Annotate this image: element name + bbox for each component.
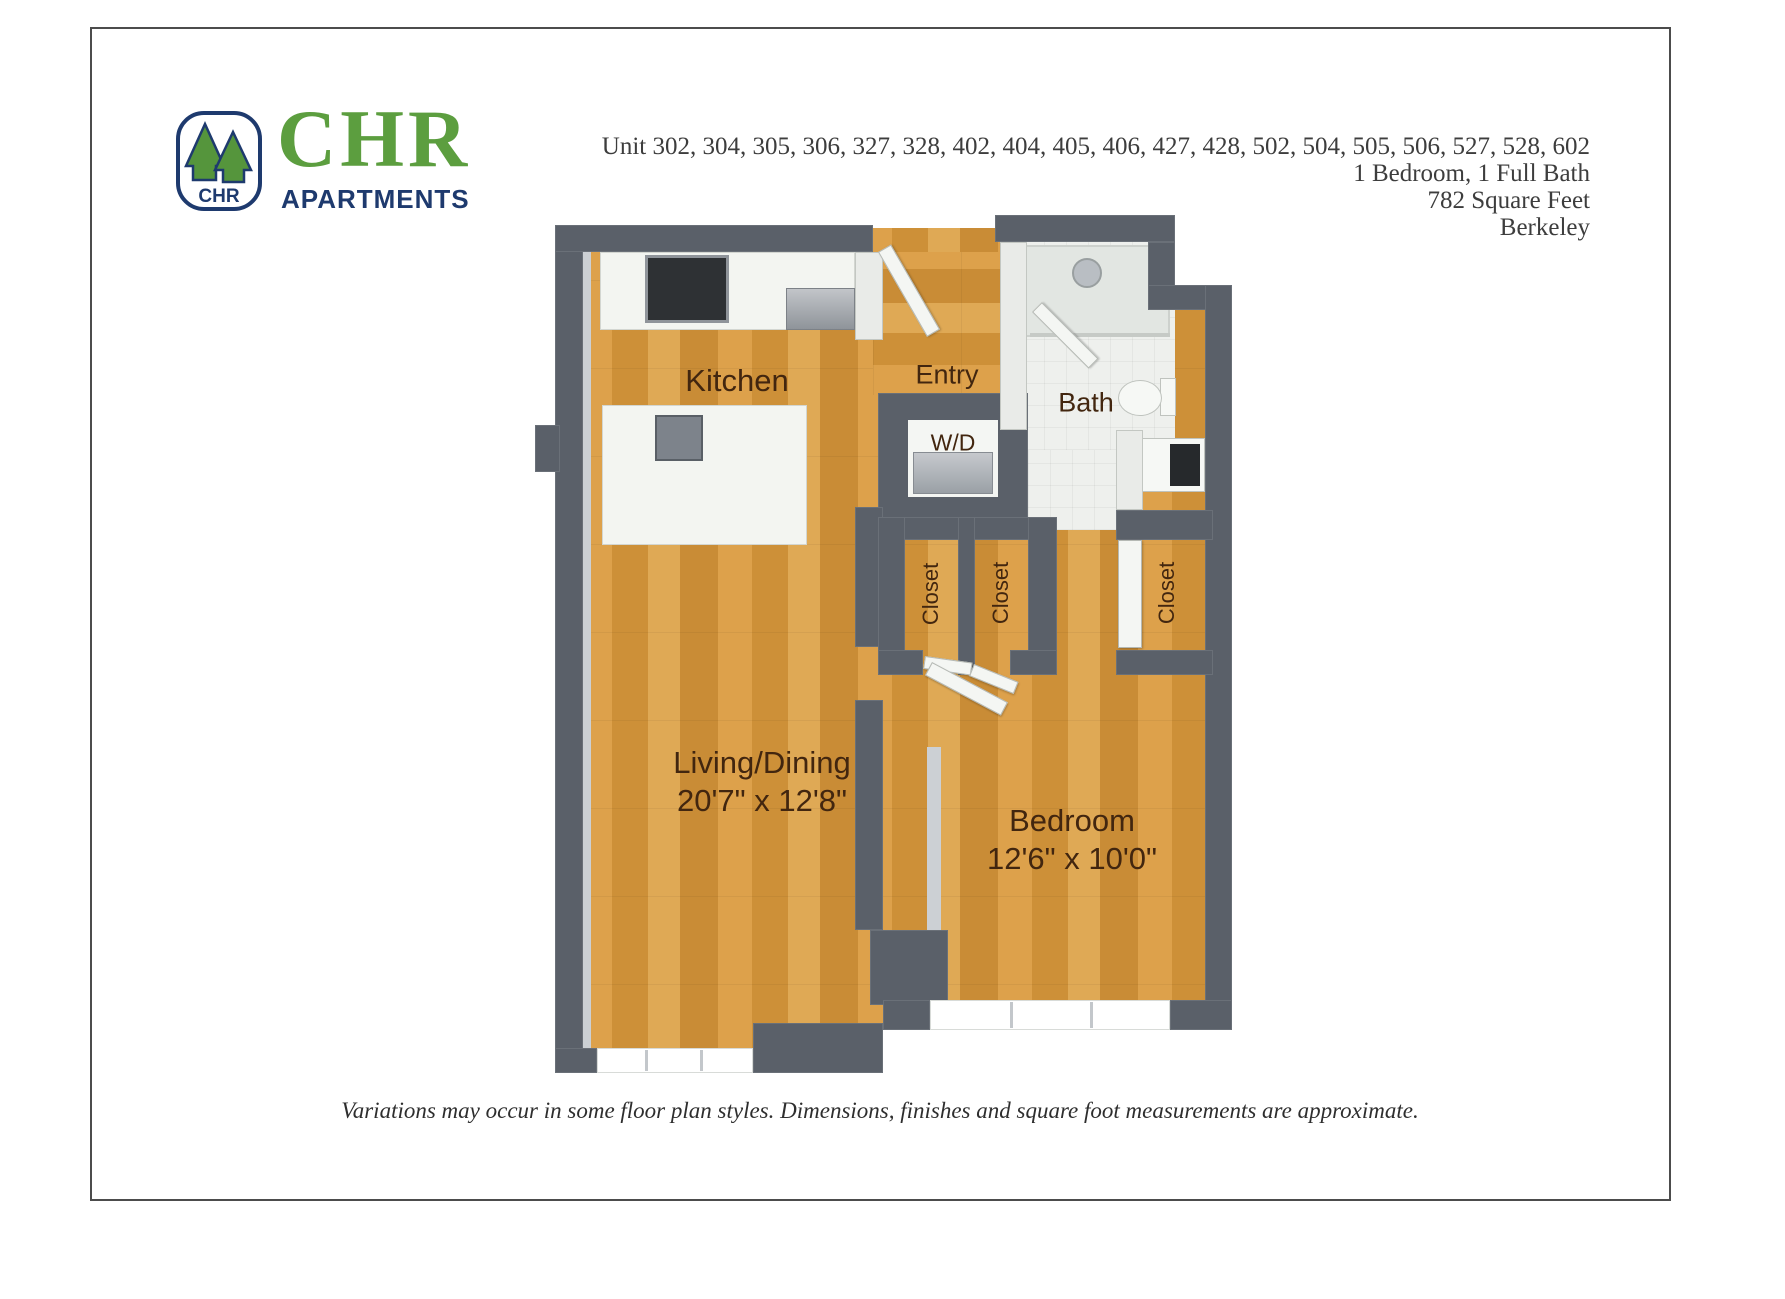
logo-icon-text: CHR: [198, 186, 239, 207]
wall-bedroom-bottom-right: [1170, 1000, 1232, 1030]
wall-entry-partition: [855, 252, 883, 340]
wall-closet-bottom-right: [1010, 650, 1057, 675]
kitchen-island: [602, 405, 807, 545]
stove-icon: [645, 255, 729, 323]
disclaimer-text: Variations may occur in some floor plan …: [90, 1098, 1670, 1124]
window-mullion: [1090, 1002, 1093, 1028]
wd-label: W/D: [931, 430, 976, 457]
bedroom-name: Bedroom: [987, 802, 1157, 840]
wall-closet3-bottom: [1116, 650, 1213, 675]
closet1-label: Closet: [918, 563, 944, 625]
exterior-cutout-top-right: [1175, 215, 1250, 285]
bath-label: Bath: [1058, 388, 1114, 419]
brand-subtitle: APARTMENTS: [281, 184, 470, 215]
window-mullion: [1010, 1002, 1013, 1028]
showerhead-icon: [1072, 258, 1102, 288]
wall-closet-bottom-left: [878, 650, 923, 675]
tree-icon: CHR: [175, 110, 263, 212]
unit-numbers: Unit 302, 304, 305, 306, 327, 328, 402, …: [602, 133, 1590, 160]
vanity-sink-icon: [1170, 444, 1200, 486]
chr-logo-icon: CHR: [175, 110, 263, 212]
kitchen-label: Kitchen: [685, 363, 788, 399]
wall-closet3-top: [1116, 510, 1213, 540]
wall-jog-block: [870, 930, 948, 1005]
wall-living-bottom-right: [753, 1023, 883, 1073]
living-window: [597, 1048, 753, 1073]
floor-plan: Kitchen Entry Bath W/D Closet Closet Clo…: [550, 200, 1250, 1085]
wall-bath-top: [995, 215, 1175, 242]
closet3-label: Closet: [1154, 562, 1180, 624]
wall-left-face: [583, 230, 591, 1048]
closet2-label: Closet: [988, 562, 1014, 624]
exterior-cutout-bottom-right: [883, 1030, 1250, 1085]
wall-bath-left: [1000, 242, 1027, 430]
wall-closet-mid: [958, 517, 975, 675]
bedroom-dimensions: 12'6" x 10'0": [987, 840, 1157, 878]
window-mullion: [645, 1050, 648, 1071]
window-mullion: [700, 1050, 703, 1071]
wall-living-divider-lower: [855, 700, 883, 930]
dishwasher-icon: [786, 288, 855, 330]
bedroom-window: [930, 1000, 1170, 1030]
wall-bedroom-bottom-left: [883, 1000, 930, 1030]
floorplan-page: { "logo": { "icon_text": "CHR", "brand":…: [0, 0, 1785, 1299]
closet3-door: [1118, 540, 1142, 648]
toilet-icon: [1118, 380, 1162, 416]
wall-left: [555, 225, 583, 1073]
brand-name: CHR: [277, 98, 471, 180]
living-label: Living/Dining 20'7" x 12'8": [673, 744, 851, 820]
living-room-dimensions: 20'7" x 12'8": [673, 782, 851, 820]
wall-closet3-jamb: [1116, 430, 1143, 510]
entry-label: Entry: [915, 360, 978, 391]
bedroom-label: Bedroom 12'6" x 10'0": [987, 802, 1157, 878]
wall-left-jog: [535, 425, 560, 472]
washer-dryer-icon: [913, 452, 993, 494]
wall-top: [555, 225, 873, 252]
wall-living-bottom-left: [555, 1048, 597, 1073]
bed-bath: 1 Bedroom, 1 Full Bath: [602, 160, 1590, 187]
sink-icon: [655, 415, 703, 461]
living-room-name: Living/Dining: [673, 744, 851, 782]
shower-edge: [1030, 333, 1170, 337]
toilet-tank: [1160, 378, 1176, 416]
